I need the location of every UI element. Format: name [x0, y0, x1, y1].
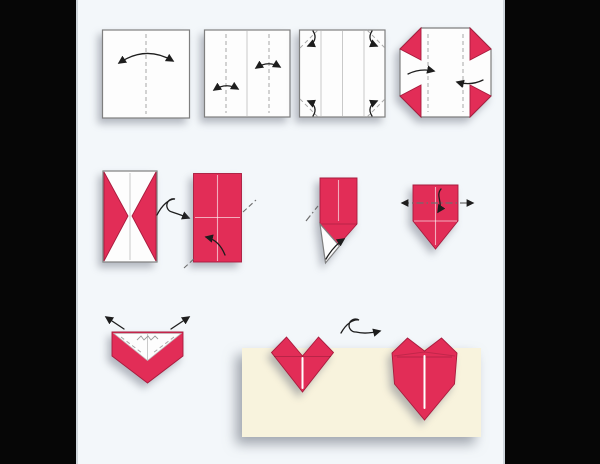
- step-8-fold-top-back: [402, 185, 473, 249]
- pull-out-arrow-left: [106, 317, 124, 329]
- step-9-pull-corners: [106, 317, 189, 383]
- step-3-square: [300, 30, 386, 117]
- step-7-point-fold: [306, 178, 357, 263]
- step-4-octagon: [400, 28, 491, 117]
- step-2-square: [205, 30, 291, 117]
- pull-out-arrow-right: [171, 317, 189, 329]
- step-6-red-rectangle: [184, 174, 256, 269]
- origami-instructions-diagram: [0, 0, 600, 464]
- fold-line-mark: [306, 206, 318, 221]
- turn-over-arrow-icon: [157, 199, 189, 218]
- screenshot-stage: [0, 0, 600, 464]
- step-1-square: [103, 30, 190, 118]
- turn-over-arrow-icon: [341, 319, 380, 333]
- diagonal-fold-line-upper: [243, 200, 256, 212]
- step-5-folded-panels: [103, 171, 189, 262]
